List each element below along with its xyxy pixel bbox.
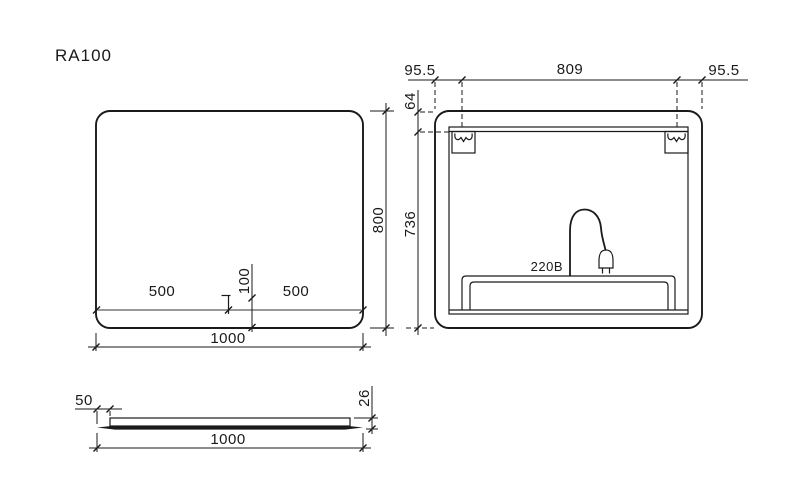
power-plug-icon xyxy=(599,250,613,274)
model-title: RA100 xyxy=(55,46,112,65)
dim-front-height-label: 800 xyxy=(370,207,387,234)
dim-back-left: 64 736 xyxy=(402,90,451,335)
dim-front-width-label: 1000 xyxy=(210,330,245,347)
dim-side-thickness: 26 xyxy=(354,386,378,434)
dim-side-width-label: 1000 xyxy=(210,431,245,448)
mounting-bracket-left xyxy=(452,132,475,154)
side-view: 50 26 1000 xyxy=(75,386,378,452)
voltage-label: 220B xyxy=(531,259,563,274)
dim-front-height: 800 xyxy=(370,103,394,336)
dim-side-inset-label: 50 xyxy=(75,392,93,409)
dim-side-thickness-label: 26 xyxy=(356,389,373,407)
dim-sensor-height-label: 100 xyxy=(236,268,253,295)
side-panel-profile xyxy=(110,418,350,426)
front-view: 500 500 100 1000 800 xyxy=(88,103,394,351)
dim-bracket-span-label: 809 xyxy=(557,61,584,78)
drawing-sheet: RA100 500 500 100 xyxy=(0,0,800,500)
power-cord: 220B xyxy=(531,210,613,277)
dim-side-width: 1000 xyxy=(89,431,371,452)
touch-sensor-icon xyxy=(222,296,233,315)
dim-front-width: 1000 xyxy=(88,330,371,351)
dim-bracket-bottom-label: 736 xyxy=(402,211,419,238)
dim-bracket-top-label: 64 xyxy=(402,92,419,110)
technical-drawing: RA100 500 500 100 xyxy=(0,0,800,500)
dim-side-inset: 50 xyxy=(75,392,122,424)
mounting-bracket-right xyxy=(665,132,688,154)
dim-sensor-vertical: 100 xyxy=(236,264,256,332)
dim-back-top: 95.5 809 95.5 xyxy=(404,61,748,130)
driver-box xyxy=(462,276,675,310)
dim-sensor-right-label: 500 xyxy=(283,283,310,300)
dim-sensor-left-label: 500 xyxy=(149,283,176,300)
back-view: 220B 95.5 809 95.5 64 736 xyxy=(402,61,748,335)
dim-margin-left-label: 95.5 xyxy=(404,62,435,79)
dim-margin-right-label: 95.5 xyxy=(708,62,739,79)
back-panel xyxy=(449,127,688,314)
